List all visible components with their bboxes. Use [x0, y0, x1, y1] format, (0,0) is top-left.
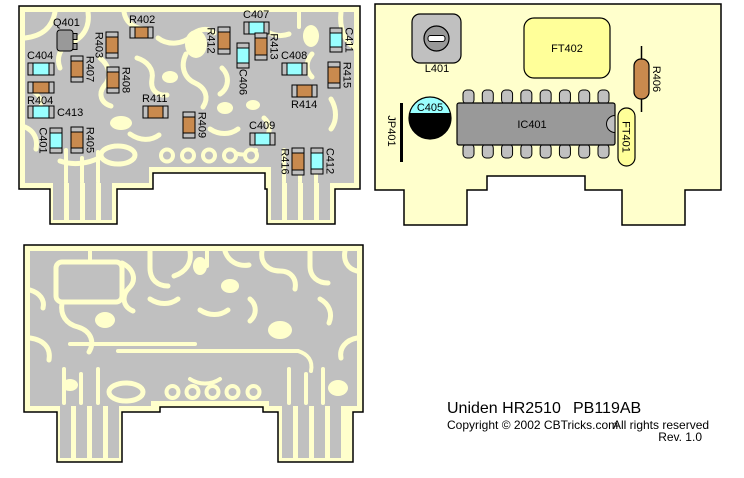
- caption-title: Uniden HR2510: [447, 400, 561, 417]
- r403-label: R403: [93, 32, 105, 58]
- edge-finger: [92, 404, 103, 458]
- edge-finger: [298, 404, 309, 458]
- solder-hole: [203, 150, 215, 162]
- solder-hole: [245, 150, 257, 162]
- c404-label: C404: [27, 50, 53, 62]
- ic-pin: [540, 90, 551, 104]
- component-c411: C411: [330, 27, 355, 52]
- edge-finger: [101, 181, 112, 220]
- solder-hole: [248, 386, 260, 398]
- r412-label: R412: [205, 27, 217, 53]
- r414-label: R414: [291, 99, 317, 111]
- component-r403: R403: [93, 32, 118, 58]
- component-ft401: FT401: [618, 108, 635, 166]
- ic-pin: [559, 144, 570, 158]
- ic-pin: [463, 90, 474, 104]
- ic-pin: [521, 144, 532, 158]
- pcb-layout-image: R402C407C411R412R403R413C404R407C408R415…: [0, 0, 744, 478]
- component-r412: R412: [205, 27, 230, 54]
- r406-label: R406: [650, 66, 662, 92]
- trace-island: [95, 312, 115, 328]
- ic-pin: [463, 144, 474, 158]
- component-r408: R408: [107, 67, 132, 93]
- caption: Uniden HR2510 PB119AB Copyright © 2002 C…: [447, 400, 709, 444]
- trace-island: [303, 25, 319, 47]
- component-r407: R407: [71, 56, 96, 82]
- r411-label: R411: [142, 93, 167, 105]
- component-r404: R404: [27, 82, 54, 107]
- component-r409: R409: [183, 112, 208, 138]
- edge-finger: [76, 404, 87, 458]
- ic401-label: IC401: [517, 119, 546, 131]
- caption-copyright: Copyright © 2002 CBTricks.com: [447, 418, 618, 432]
- ic-pin: [559, 90, 570, 104]
- trace-island: [221, 279, 239, 293]
- solder-hole: [207, 386, 219, 398]
- screw-slot: [428, 36, 445, 42]
- c411-label: C411: [343, 27, 355, 52]
- board-component-side: R402C407C411R412R403R413C404R407C408R415…: [19, 6, 360, 224]
- c409-label: C409: [249, 120, 275, 132]
- edge-finger: [69, 181, 80, 220]
- component-c406: C406: [237, 43, 249, 95]
- l401-label: L401: [425, 63, 449, 75]
- board-trace-side: [24, 245, 363, 462]
- component-c404: C404: [27, 50, 54, 75]
- ic-pin: [482, 144, 493, 158]
- ic-pin: [579, 144, 590, 158]
- component-c407: C407: [243, 9, 269, 34]
- ic-pin: [579, 90, 590, 104]
- component-r416: R416: [279, 148, 304, 175]
- c408-label: C408: [281, 50, 307, 62]
- c407-label: C407: [243, 9, 269, 21]
- jp401-label: JP401: [385, 115, 397, 146]
- component-ft402: FT402: [524, 18, 610, 78]
- r409-label: R409: [196, 112, 208, 138]
- edge-finger: [287, 181, 298, 220]
- mount-slot: [101, 146, 135, 164]
- solder-hole: [167, 386, 179, 398]
- r405-label: R405: [84, 127, 96, 153]
- solder-hole: [182, 150, 194, 162]
- trace-island: [268, 321, 292, 339]
- r415-label: R415: [341, 62, 353, 88]
- edge-finger: [60, 404, 71, 458]
- component-c401: C401: [37, 127, 62, 153]
- solder-hole: [161, 150, 173, 162]
- r413-label: R413: [268, 33, 280, 59]
- component-r413: R413: [255, 33, 280, 60]
- caption-board-id: PB119AB: [573, 400, 641, 417]
- edge-finger: [330, 404, 341, 458]
- ic-pin: [540, 144, 551, 158]
- ic-pin: [598, 90, 609, 104]
- ic-pin: [482, 90, 493, 104]
- edge-finger: [271, 181, 282, 220]
- c413-label: C413: [57, 107, 83, 119]
- trace-island: [62, 379, 78, 391]
- trace-island: [217, 102, 233, 114]
- solder-hole: [224, 150, 236, 162]
- trace-island: [110, 116, 132, 130]
- trace-island: [193, 257, 207, 275]
- component-c412: C412: [311, 148, 336, 174]
- edge-finger: [53, 181, 64, 220]
- pcb-diagram-page: R402C407C411R412R403R413C404R407C408R415…: [0, 0, 744, 478]
- component-r405: R405: [71, 127, 96, 153]
- ic-pin: [598, 144, 609, 158]
- trace-island: [328, 380, 348, 396]
- r404-label: R404: [27, 95, 53, 107]
- board-parts-side: L401FT402R406C405JP401IC401FT401: [375, 4, 721, 225]
- edge-finger: [319, 181, 330, 220]
- ic-pin: [502, 144, 513, 158]
- c406-label: C406: [237, 69, 249, 95]
- component-r415: R415: [328, 62, 353, 88]
- ft402-label: FT402: [551, 43, 583, 55]
- caption-revision: Rev. 1.0: [658, 430, 702, 444]
- edge-finger: [303, 181, 314, 220]
- component-c409: C409: [249, 120, 275, 145]
- r407-label: R407: [84, 56, 96, 82]
- c412-label: C412: [324, 148, 336, 174]
- edge-finger: [282, 404, 293, 458]
- trace-island: [246, 100, 260, 110]
- edge-finger: [314, 404, 325, 458]
- r416-label: R416: [279, 148, 291, 174]
- component-c408: C408: [281, 50, 307, 75]
- ic-pin: [502, 90, 513, 104]
- ic-pin: [521, 90, 532, 104]
- mount-slot: [109, 383, 143, 401]
- component-c405: C405: [409, 97, 451, 139]
- edge-finger: [108, 404, 119, 458]
- ft401-label: FT401: [620, 121, 632, 153]
- r402-label: R402: [129, 14, 155, 26]
- trace-island: [162, 71, 178, 83]
- component-r411: R411: [142, 93, 168, 118]
- q401-label: Q401: [53, 17, 80, 29]
- edge-finger: [85, 181, 96, 220]
- solder-hole: [227, 386, 239, 398]
- c401-label: C401: [37, 127, 49, 153]
- component-q401: Q401: [53, 17, 80, 51]
- c405-label: C405: [417, 102, 443, 114]
- solder-hole: [187, 386, 199, 398]
- trace-island: [185, 30, 207, 58]
- r408-label: R408: [120, 67, 132, 93]
